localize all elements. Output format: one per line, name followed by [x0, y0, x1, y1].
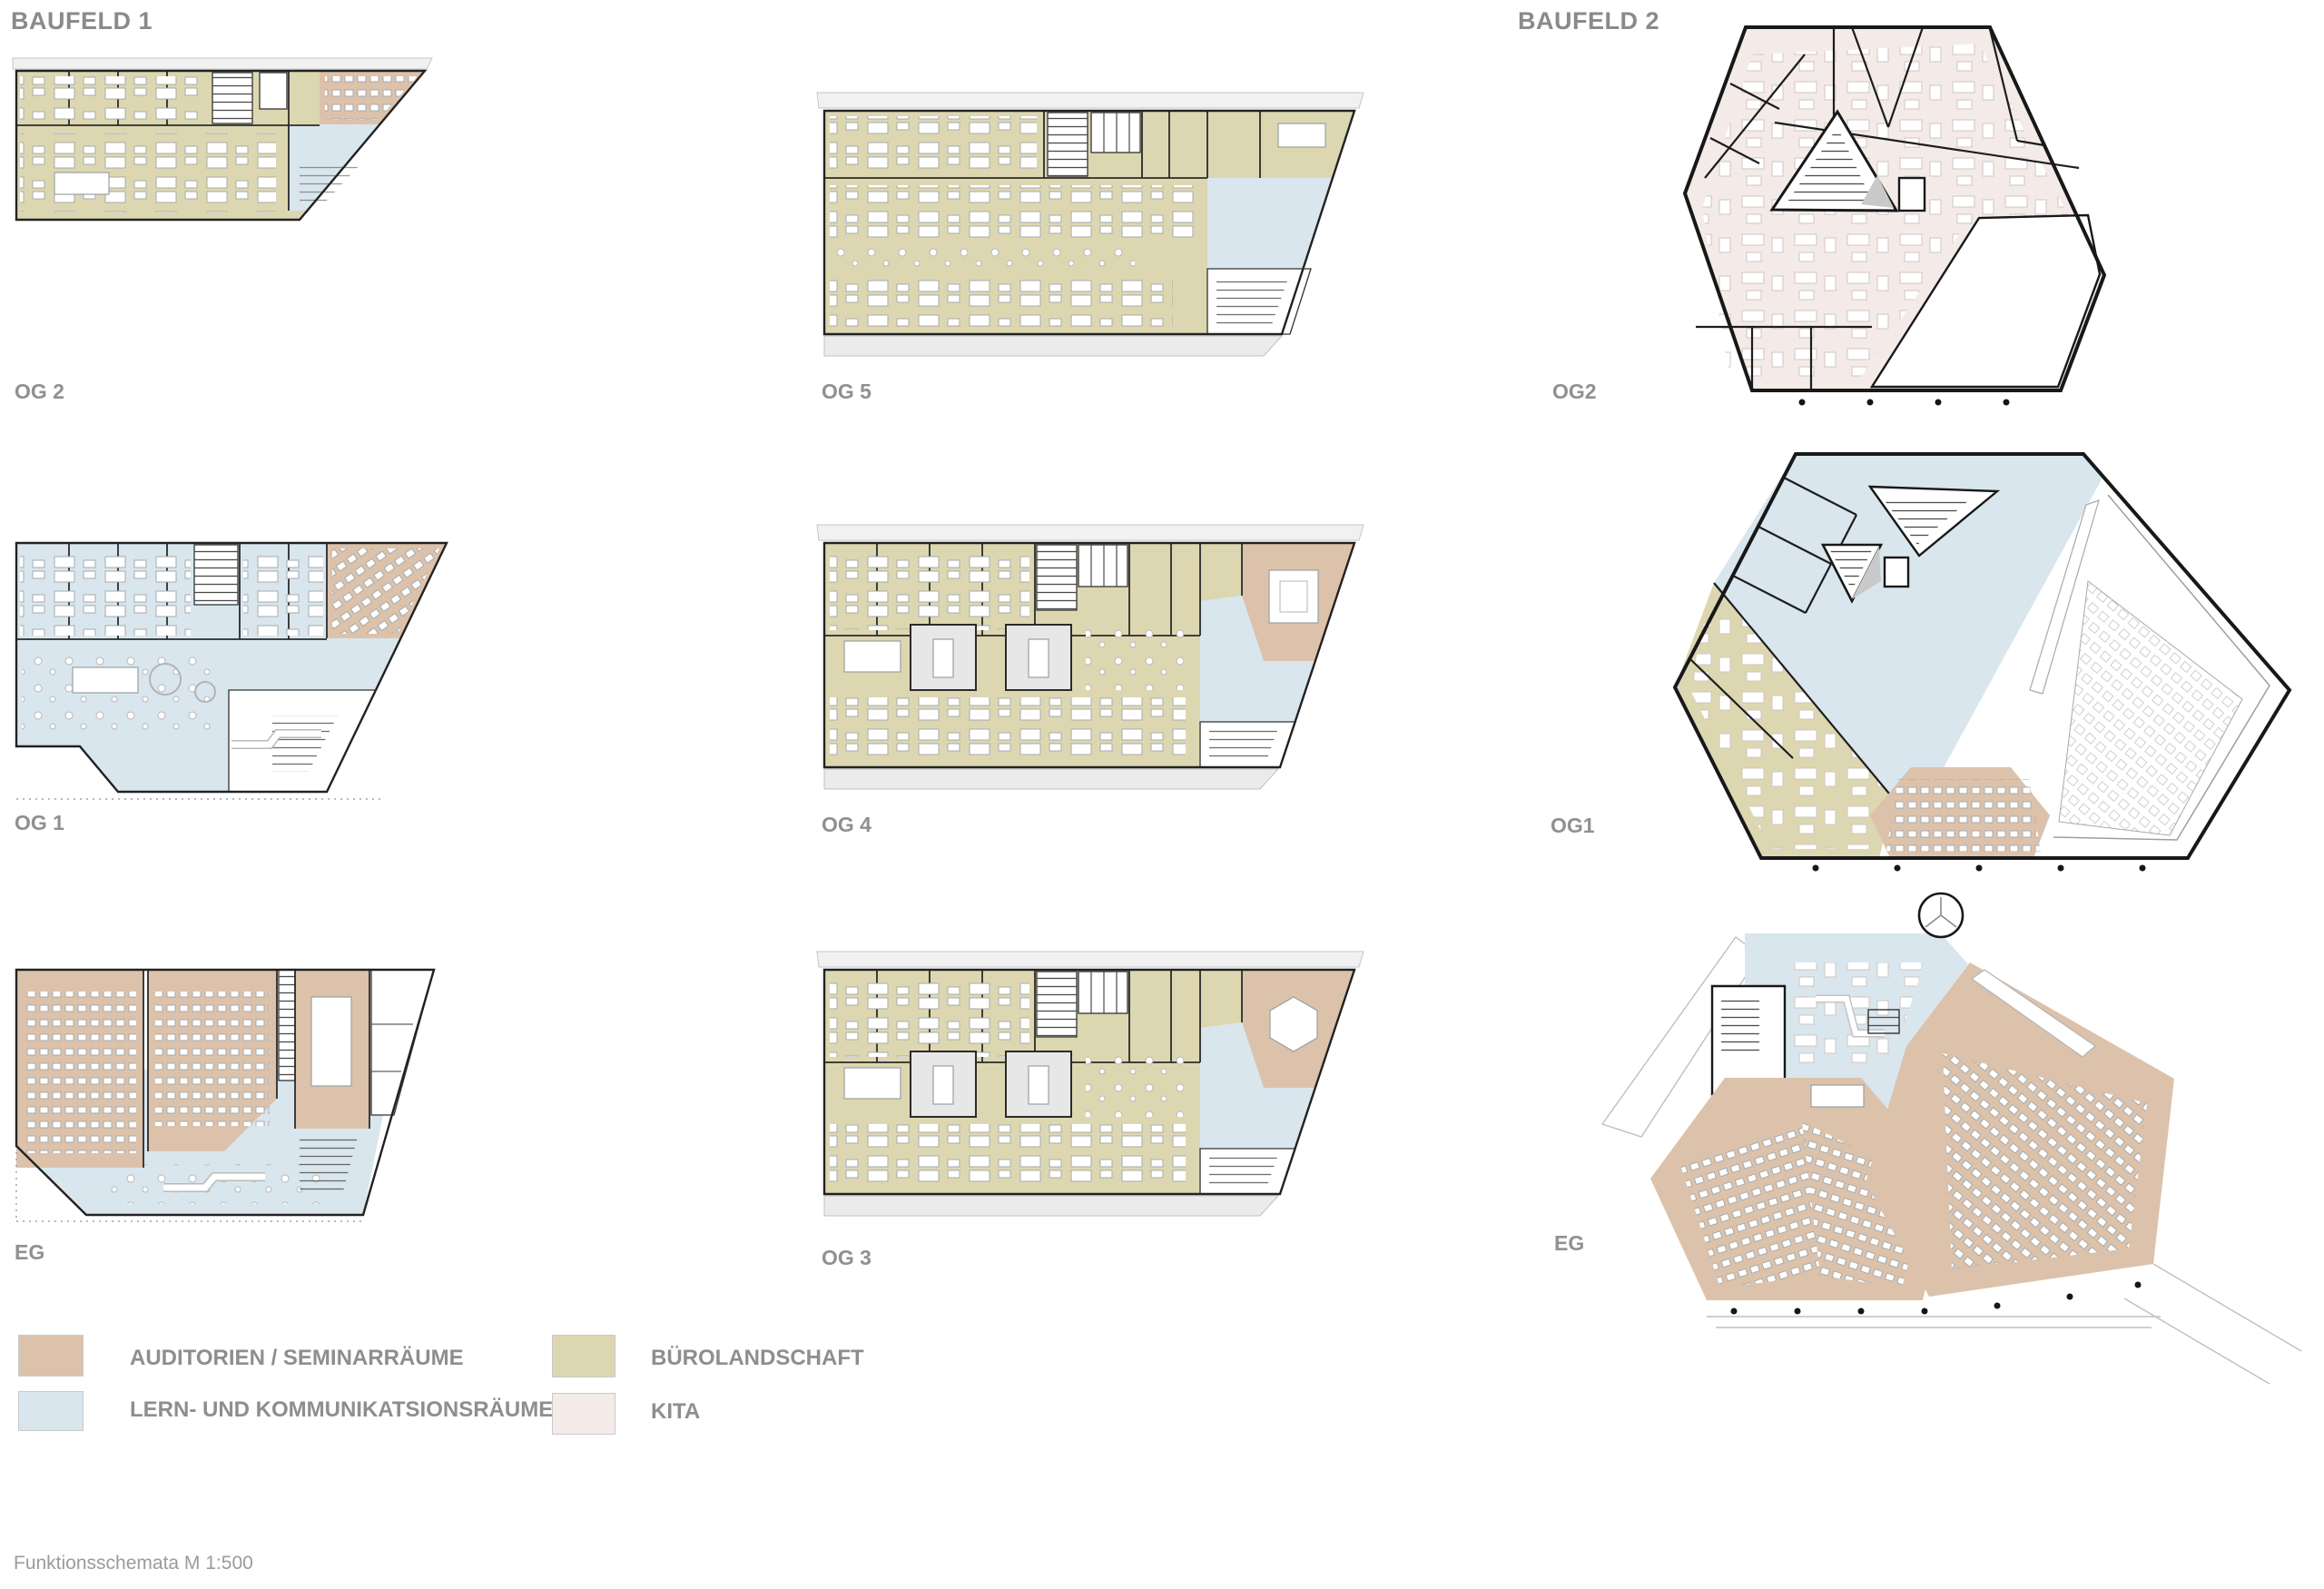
desks	[20, 548, 191, 636]
plan-og4	[817, 525, 1364, 789]
office-rooms	[371, 970, 434, 1115]
plan-baufeld1-og1	[16, 543, 447, 799]
legend-swatch-learning	[18, 1391, 84, 1431]
plan-og5	[817, 93, 1364, 356]
baufeld2-title: BAUFELD 2	[1518, 7, 1659, 35]
legend-label-auditorium: AUDITORIEN / SEMINARRÄUME	[130, 1346, 464, 1371]
label-og5: OG 5	[822, 380, 871, 404]
floor-slab	[824, 769, 1278, 789]
floor-slab	[824, 336, 1282, 356]
plan-baufeld1-eg	[16, 970, 434, 1221]
lounge	[835, 242, 1135, 267]
seat-rows	[24, 992, 136, 1153]
legend-swatch-office	[552, 1335, 615, 1377]
desks	[830, 185, 1195, 238]
seat-rows	[1886, 779, 2041, 852]
foyer-stair	[1868, 1010, 1899, 1033]
foyer-seating	[109, 1164, 325, 1204]
lounge	[1086, 627, 1186, 690]
roof-slab	[817, 525, 1364, 540]
legend-label-kita: KITA	[651, 1399, 700, 1425]
plan-baufeld2-og1	[1675, 454, 2290, 872]
meeting-table	[54, 173, 109, 194]
elevator	[1899, 178, 1925, 211]
legend-swatch-kita	[552, 1393, 615, 1435]
sheet-caption: Funktionsschemata M 1:500	[14, 1553, 253, 1574]
legend-swatch-auditorium	[18, 1335, 84, 1377]
big-table	[73, 667, 138, 693]
legend-label-office: BÜROLANDSCHAFT	[651, 1346, 864, 1371]
wc-room	[1078, 545, 1128, 587]
desks	[830, 548, 1029, 630]
seat-rows	[155, 992, 270, 1126]
plan-sheet: BAUFELD 1 BAUFELD 2 OG 2 OG 1 EG OG 5 OG…	[0, 0, 2324, 1589]
wc-room	[260, 73, 287, 109]
big-table	[844, 641, 901, 672]
desks	[243, 548, 323, 636]
plan-baufeld1-og2	[13, 58, 432, 220]
roof-slab	[817, 93, 1364, 108]
plan-baufeld2-og2	[1685, 27, 2104, 406]
label-b2-og1: OG1	[1551, 814, 1595, 838]
stage	[1811, 1085, 1864, 1107]
label-og4: OG 4	[822, 813, 871, 837]
baufeld1-title: BAUFELD 1	[11, 7, 153, 35]
desks	[20, 76, 206, 120]
og4-conference-table	[1269, 570, 1318, 623]
roof-slab	[13, 58, 432, 69]
label-b1-og2: OG 2	[15, 380, 64, 404]
label-b1-eg: EG	[15, 1240, 44, 1265]
wc-room	[1091, 113, 1140, 153]
desks	[830, 697, 1186, 763]
desks	[830, 116, 1037, 173]
desks	[830, 272, 1173, 329]
label-b1-og1: OG 1	[15, 811, 64, 835]
conference-table	[311, 997, 351, 1086]
legend-label-learning: LERN- UND KOMMUNIKATSIONSRÄUME	[130, 1397, 553, 1423]
plan-baufeld2-eg	[1602, 893, 2301, 1384]
seat-rows	[325, 76, 418, 120]
plan-og3	[817, 952, 1364, 1216]
elevator	[1885, 558, 1908, 587]
label-b2-eg: EG	[1554, 1231, 1584, 1256]
label-b2-og2: OG2	[1552, 380, 1597, 404]
label-og3: OG 3	[822, 1246, 871, 1270]
conference-table	[1278, 123, 1325, 147]
